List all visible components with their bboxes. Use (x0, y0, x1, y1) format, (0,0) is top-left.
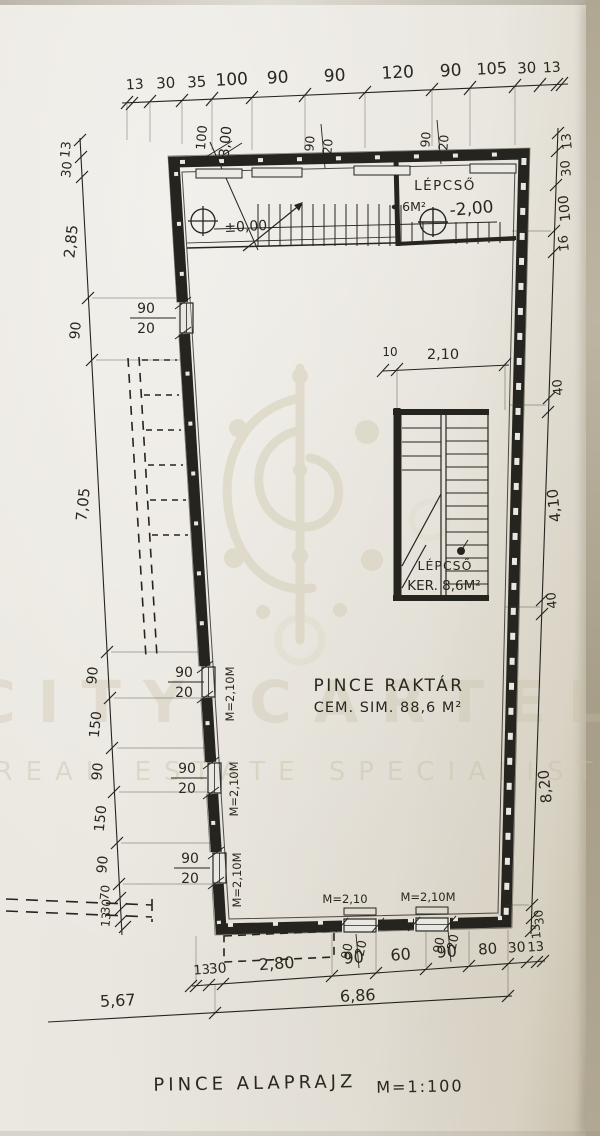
window-width-label: 90 (181, 851, 199, 867)
outer-walls (168, 148, 530, 935)
dim-label: 30 (156, 74, 176, 93)
stair-width-dimension (377, 358, 511, 410)
dim-label: 2,80 (258, 953, 295, 974)
lintel-label: M=2,10M (230, 852, 244, 907)
dim-label: 8,20 (534, 769, 555, 804)
dim-label: 90 (343, 947, 365, 967)
stairroom-level-text: -2,00 (449, 197, 495, 221)
window-height-label: 20 (319, 138, 335, 155)
inner-stair-area: KER. 8,6M² (407, 578, 480, 594)
dim-label: 13 (542, 60, 561, 77)
dim-label: 2,10 (427, 347, 459, 363)
stairroom-name: LÉPCSŐ (414, 176, 476, 194)
dim-label: 13 (58, 141, 75, 159)
window-width-label: 90 (175, 665, 193, 681)
window-height-label: 20 (435, 134, 451, 151)
dim-label: 30 (208, 960, 227, 977)
dim-label: 35 (187, 73, 207, 92)
entry-stair-dim: 3,00 (217, 125, 236, 157)
lintel-label: M=2,10M (227, 761, 241, 816)
window-width-label: 90 (178, 761, 196, 777)
dim-label: 105 (476, 58, 507, 79)
window-width-label: 90 (417, 131, 433, 148)
dim-label: 90 (439, 60, 462, 81)
window-height-label: 20 (137, 321, 155, 337)
dim-label: 150 (87, 710, 106, 738)
dim-label: 30 (517, 59, 537, 78)
dim-label: 30 (531, 909, 547, 926)
entry-stair-dim: 100 (194, 125, 211, 151)
stairroom-area-dot (392, 205, 396, 209)
dim-label: 90 (84, 666, 102, 685)
dim-label: 13 (527, 939, 545, 955)
dim-label: 90 (323, 65, 346, 86)
dim-label: 100 (556, 194, 575, 222)
window-height-label: 20 (178, 781, 196, 797)
dim-label: 100 (215, 69, 248, 91)
window-width-label: 90 (301, 135, 317, 152)
dim-label: 90 (94, 855, 112, 874)
dim-label: 40 (550, 378, 567, 396)
dim-label: 13 (528, 923, 544, 940)
storage-room-finish: CEM. SIM. 88,6 M² (314, 700, 462, 716)
dim-label: 13 (98, 911, 114, 928)
witness-lines (92, 86, 551, 1014)
dim-label: 13 (559, 132, 576, 150)
dim-label: 6,86 (339, 985, 376, 1006)
dim-label: 90 (67, 321, 85, 340)
dim-label: 90 (89, 762, 107, 781)
lintel-label: M=2,10M (400, 890, 455, 904)
dim-label: 90 (436, 941, 458, 961)
stairroom-area: 6M² (402, 199, 426, 214)
storage-room-name: PINCE RAKTÁR (313, 674, 464, 696)
dim-label: 13 (125, 77, 144, 94)
dim-label: 2,85 (60, 224, 81, 259)
dim-label: 7,05 (72, 487, 93, 522)
dim-label: 150 (92, 804, 111, 832)
drawing-scale: M=1:100 (376, 1076, 464, 1097)
drawing-title: PINCE ALAPRAJZ (153, 1071, 356, 1096)
dim-label: 60 (390, 944, 412, 964)
scanned-floorplan-page: CITY CARTEL REAL ESTATE SPECIALIST (0, 0, 600, 1136)
dim-label: 80 (477, 939, 497, 958)
dim-label: 40 (544, 591, 561, 609)
entry-level-symbol (188, 206, 218, 236)
dim-label: 90 (266, 67, 289, 88)
lintel-label: M=2,10M (223, 666, 237, 721)
lintel-label: M=2,10 (322, 892, 367, 906)
entry-level-text: ±0,00 (224, 218, 268, 236)
dim-label: 30 (507, 939, 526, 956)
window-width-label: 90 (137, 301, 155, 317)
inner-stair-name: LÉPCSŐ (418, 558, 473, 573)
dim-label: 10 (382, 345, 397, 359)
dim-label: 5,67 (99, 990, 136, 1011)
dim-label: 4,10 (543, 488, 564, 523)
window-height-label: 20 (181, 871, 199, 887)
dim-label: 16 (556, 234, 573, 252)
window-height-label: 20 (175, 685, 193, 701)
dim-label: 30 (558, 159, 575, 177)
floorplan-drawing: CITY CARTEL REAL ESTATE SPECIALIST (0, 0, 600, 1136)
dim-label: 30 (59, 161, 76, 179)
dim-label: 120 (381, 62, 414, 84)
